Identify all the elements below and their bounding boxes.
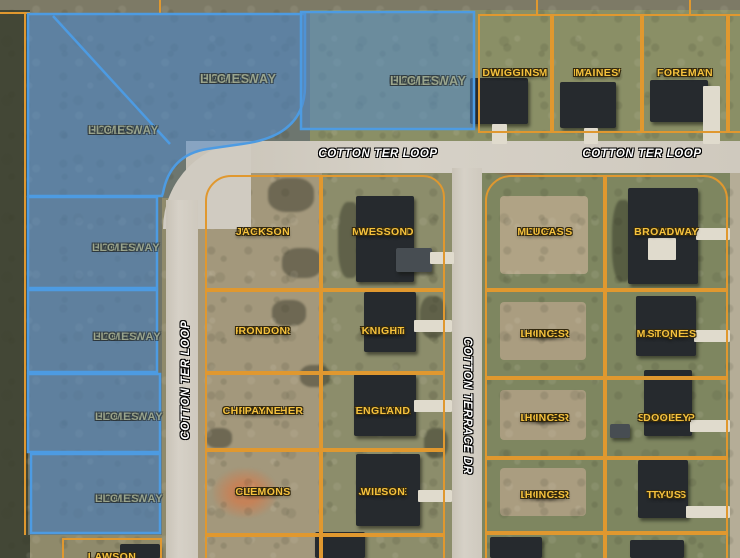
street-name-label: COTTON TER LOOP [318, 148, 437, 160]
street-name-label: COTTON TERRACE DR [461, 337, 473, 474]
street-name-label: COTTON TER LOOP [582, 148, 701, 160]
parcel-map-canvas[interactable]: DARNELL MWIGGINSDAVID WMAINESJOHN RFOREM… [0, 0, 740, 558]
street-name-label: COTTON TER LOOP [180, 320, 192, 439]
street-labels-layer: COTTON TER LOOPCOTTON TER LOOPCOTTON TER… [0, 0, 740, 558]
